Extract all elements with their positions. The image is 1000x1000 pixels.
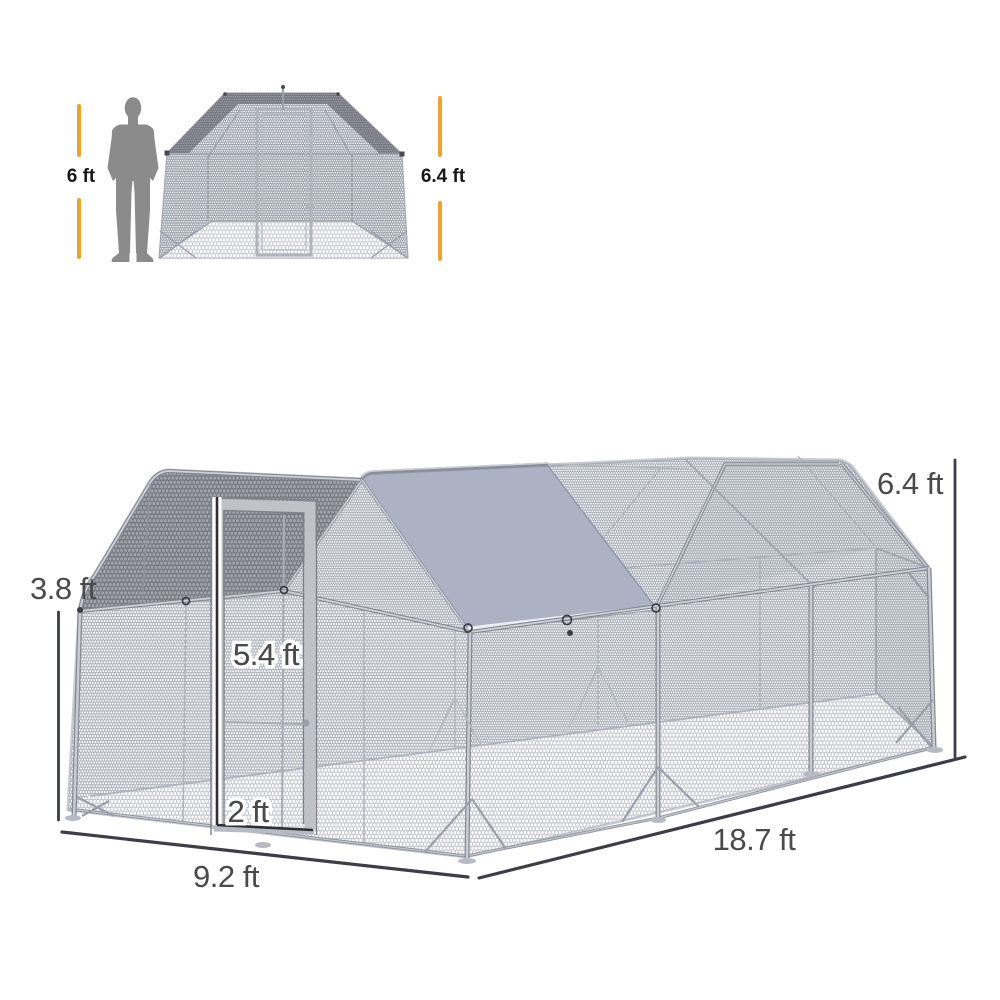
svg-text:3.8 ft: 3.8 ft	[30, 571, 97, 606]
svg-text:6.4 ft: 6.4 ft	[421, 166, 466, 187]
svg-text:6.4 ft: 6.4 ft	[877, 466, 944, 501]
svg-text:9.2 ft: 9.2 ft	[193, 859, 260, 894]
svg-text:18.7 ft: 18.7 ft	[713, 822, 797, 857]
svg-text:6 ft: 6 ft	[67, 166, 96, 187]
svg-text:5.4 ft: 5.4 ft	[233, 637, 300, 672]
svg-text:2 ft: 2 ft	[227, 794, 269, 829]
